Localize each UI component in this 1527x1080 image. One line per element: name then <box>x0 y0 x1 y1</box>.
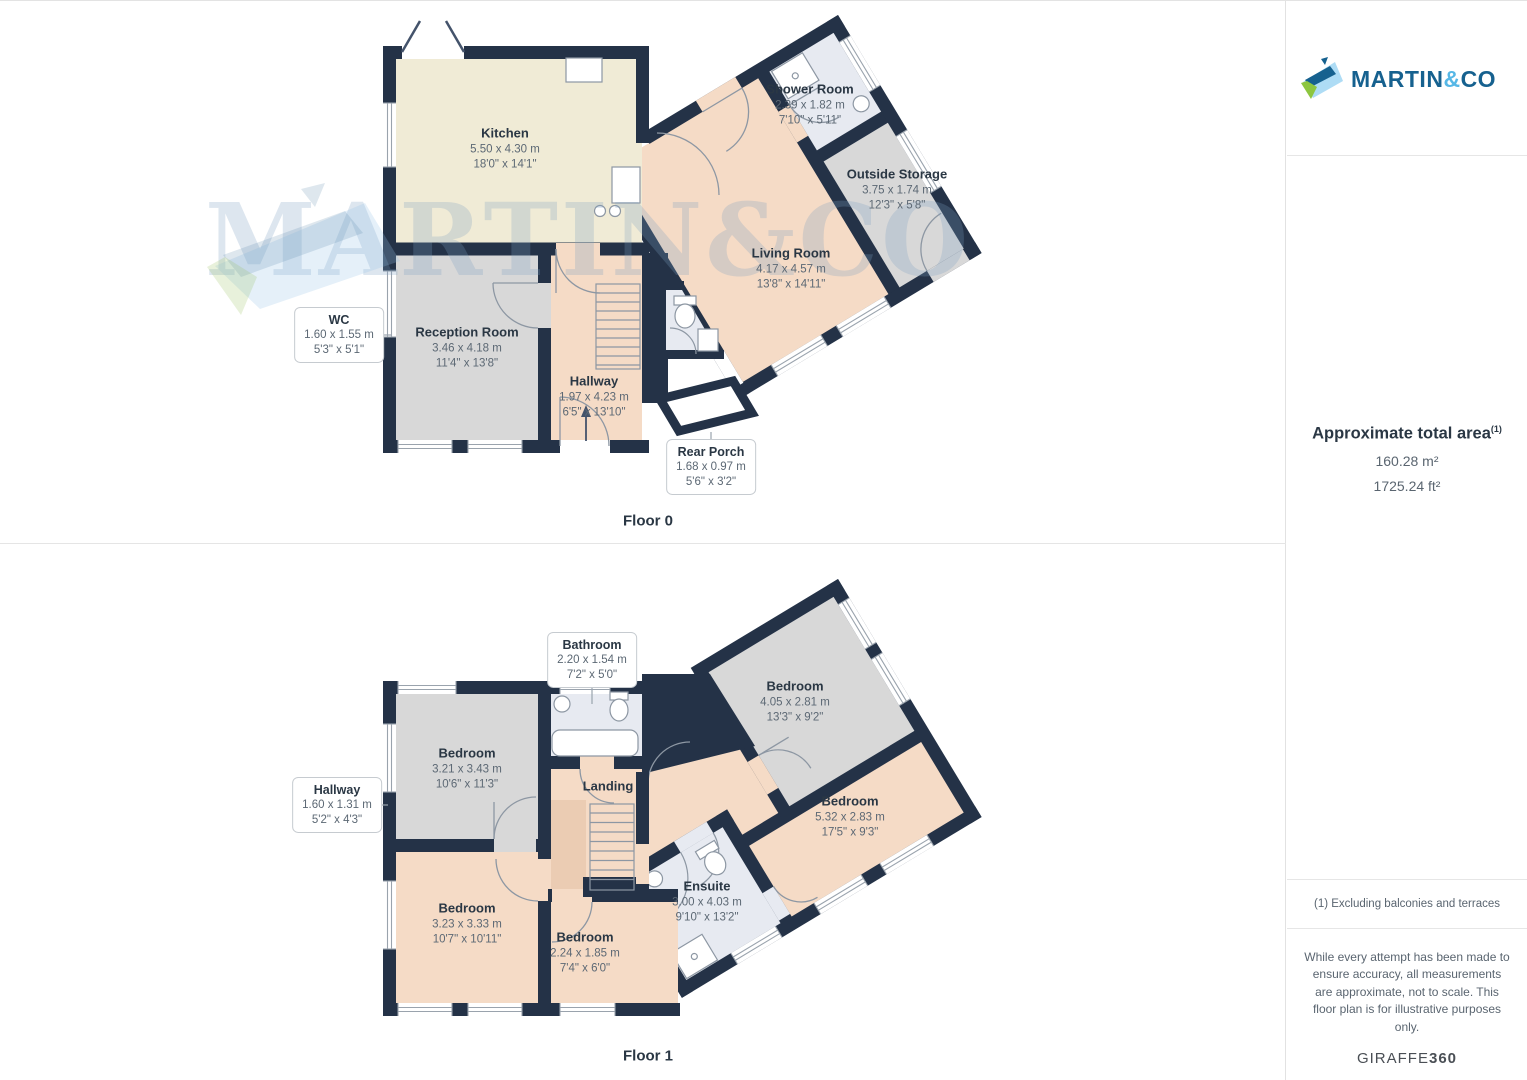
sidebar-disclaimer-section: While every attempt has been made to ens… <box>1287 929 1527 1080</box>
brand-amp: & <box>1443 66 1460 92</box>
provider-logo: GIRAFFE360 <box>1303 1050 1511 1067</box>
room-label-bedroom-tr: Bedroom 4.05 x 2.81 m 13'3" x 9'2" <box>760 679 830 726</box>
room-label-living: Living Room 4.17 x 4.57 m 13'8" x 14'11" <box>752 246 831 293</box>
floor-0-plan-svg <box>0 1 1286 544</box>
callout-hallway-f1: Hallway 1.60 x 1.31 m 5'2" x 4'3" <box>292 777 382 833</box>
disclaimer-text: While every attempt has been made to ens… <box>1303 949 1511 1036</box>
floor-0-section: MARTIN&CO Kitchen 5.50 x 4.30 m 18'0" x … <box>0 1 1286 544</box>
f1-bottom-windows <box>398 1003 615 1016</box>
callout-wc: WC 1.60 x 1.55 m 5'3" x 5'1" <box>294 307 384 363</box>
room-label-ensuite: Ensuite 3.00 x 4.03 m 9'10" x 13'2" <box>672 879 742 926</box>
sidebar-footnote: (1) Excluding balconies and terraces <box>1287 879 1527 929</box>
area-sqm: 160.28 m² <box>1287 453 1527 469</box>
room-label-bedroom-bm: Bedroom 2.24 x 1.85 m 7'4" x 6'0" <box>550 930 620 977</box>
provider-suffix: 360 <box>1429 1050 1457 1067</box>
room-label-bedroom-r: Bedroom 5.32 x 2.83 m 17'5" x 9'3" <box>815 794 885 841</box>
floor-1-section: MARTIN&CO Bedroom 3.21 x 3.43 m 10'6" x … <box>0 544 1286 1080</box>
sidebar: MARTIN&CO Approximate total area(1) 160.… <box>1287 1 1527 1080</box>
floorplan-page: MARTIN&CO Kitchen 5.50 x 4.30 m 18'0" x … <box>0 0 1527 1080</box>
floor-1-label: Floor 1 <box>623 1048 673 1065</box>
provider-name: GIRAFFE <box>1357 1050 1429 1067</box>
plan-area: MARTIN&CO Kitchen 5.50 x 4.30 m 18'0" x … <box>0 1 1286 1080</box>
area-title: Approximate total area(1) <box>1287 424 1527 444</box>
svg-text:MARTIN&CO: MARTIN&CO <box>1351 66 1496 92</box>
room-label-reception: Reception Room 3.46 x 4.18 m 11'4" x 13'… <box>415 325 518 372</box>
room-label-hallway: Hallway 1.97 x 4.23 m 6'5" x 13'10" <box>559 374 629 421</box>
callout-rear-porch: Rear Porch 1.68 x 0.97 m 5'6" x 3'2" <box>666 439 756 495</box>
brand-logo: MARTIN&CO <box>1287 1 1527 156</box>
brand-name-primary: MARTIN <box>1351 66 1443 92</box>
rear-porch-area <box>660 381 752 431</box>
room-label-bedroom-tl: Bedroom 3.21 x 3.43 m 10'6" x 11'3" <box>432 746 502 793</box>
brand-logo-icon: MARTIN&CO <box>1301 55 1513 101</box>
room-label-bedroom-bl: Bedroom 3.23 x 3.33 m 10'7" x 10'11" <box>432 901 502 948</box>
area-title-superscript: (1) <box>1491 424 1502 434</box>
room-label-storage: Outside Storage 3.75 x 1.74 m 12'3" x 5'… <box>847 167 947 214</box>
floor-1-plan-svg <box>0 544 1286 1080</box>
area-sqft: 1725.24 ft² <box>1287 478 1527 494</box>
sidebar-area-section: Approximate total area(1) 160.28 m² 1725… <box>1287 156 1527 879</box>
room-label-shower: Shower Room 2.39 x 1.82 m 7'10" x 5'11" <box>766 82 853 129</box>
callout-bathroom: Bathroom 2.20 x 1.54 m 7'2" x 5'0" <box>547 632 637 688</box>
floor-0-label: Floor 0 <box>623 513 673 530</box>
brand-name-secondary: CO <box>1461 66 1497 92</box>
room-label-landing: Landing <box>583 779 634 796</box>
room-label-kitchen: Kitchen 5.50 x 4.30 m 18'0" x 14'1" <box>470 126 540 173</box>
